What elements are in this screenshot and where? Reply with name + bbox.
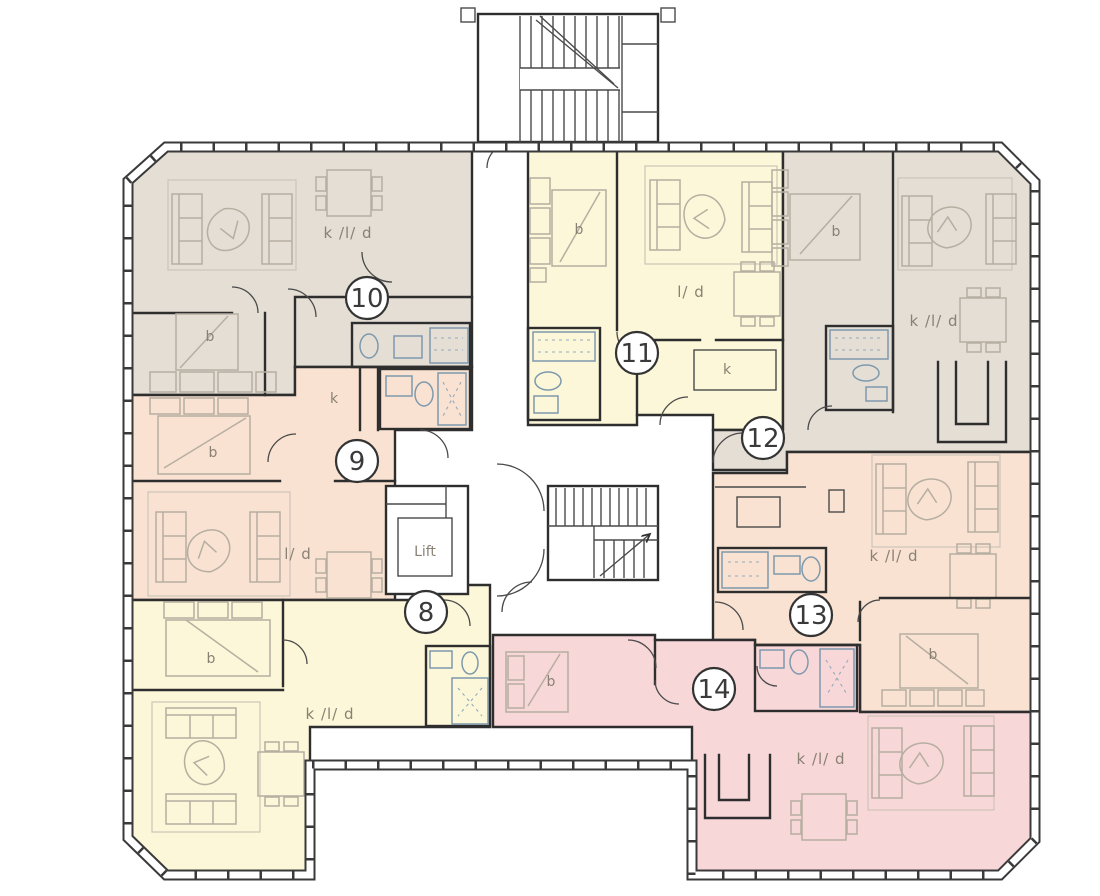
room-label-bed: b (209, 445, 218, 461)
room-label-kld: k /l/ d (909, 312, 958, 330)
room-label-bed: b (832, 224, 841, 240)
room-label-kitchen: k (330, 391, 339, 407)
unit-circle-8: 8 (405, 591, 447, 633)
room-label-kitchen: k (723, 362, 732, 378)
lift-label: Lift (414, 544, 436, 560)
room-label-kld: k /l/ d (796, 750, 845, 768)
room-label-bed: b (547, 674, 556, 690)
unit-circle-14: 14 (693, 668, 735, 710)
core-lift: Lift (386, 486, 468, 594)
svg-text:12: 12 (746, 424, 779, 454)
svg-text:10: 10 (350, 284, 383, 314)
svg-text:11: 11 (620, 339, 653, 369)
svg-text:14: 14 (697, 675, 730, 705)
svg-text:13: 13 (794, 601, 827, 631)
room-label-living: l/ d (677, 283, 705, 301)
floor-plan: k /l/ d b k b l/ d (0, 0, 1100, 896)
unit-circle-10: 10 (346, 277, 388, 319)
svg-text:9: 9 (349, 447, 366, 477)
room-label-living: l/ d (284, 545, 312, 563)
unit-circle-12: 12 (742, 417, 784, 459)
room-label-bed: b (207, 651, 216, 667)
room-label-kld: k /l/ d (305, 705, 354, 723)
svg-text:8: 8 (418, 598, 435, 628)
core-stairs (548, 486, 658, 580)
room-label-bed: b (575, 222, 584, 238)
unit-circle-13: 13 (790, 594, 832, 636)
external-stair-tower (461, 8, 675, 142)
room-label-kld: k /l/ d (323, 224, 372, 242)
room-label-kld: k /l/ d (869, 547, 918, 565)
unit-circle-9: 9 (336, 440, 378, 482)
room-label-bed: b (206, 329, 215, 345)
unit-circle-11: 11 (616, 332, 658, 374)
room-label-bed: b (929, 647, 938, 663)
